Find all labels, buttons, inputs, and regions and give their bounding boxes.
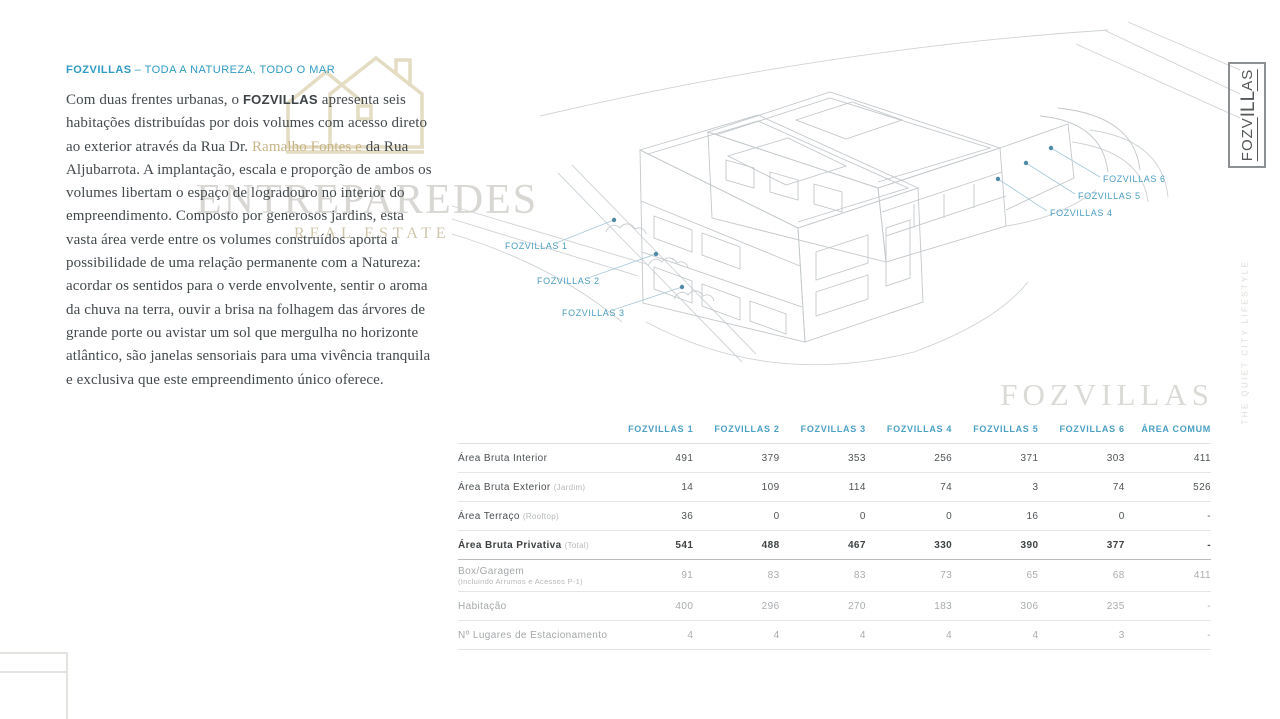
- table-cell: 235: [1038, 592, 1124, 621]
- intro-text: da Rua Aljubarrota. A implantação, escal…: [66, 139, 432, 388]
- table-header: FOZVILLAS 4: [866, 424, 952, 444]
- table-cell: 83: [693, 560, 779, 592]
- row-label: Área Terraço(Rooftop): [458, 502, 607, 531]
- garden-bushes: [606, 224, 714, 301]
- table-cell: 68: [1038, 560, 1124, 592]
- page-heading: FOZVILLAS– TODA A NATUREZA, TODO O MAR: [66, 64, 335, 76]
- table-row-habitacao: Habitação 400 296 270 183 306 235 -: [458, 592, 1211, 621]
- table-cell: 109: [693, 473, 779, 502]
- logo-segment: AS: [1239, 69, 1258, 91]
- table-cell: 4: [952, 621, 1038, 650]
- row-label: Área Bruta Privativa(Total): [458, 531, 607, 560]
- table-cell: 0: [780, 502, 866, 531]
- table-cell: 379: [693, 444, 779, 473]
- intro-paragraph: Com duas frentes urbanas, o FOZVILLAS ap…: [66, 88, 438, 392]
- table-cell: 0: [866, 502, 952, 531]
- table-cell: 0: [1038, 502, 1124, 531]
- table-cell: 74: [1038, 473, 1124, 502]
- table-cell: 36: [607, 502, 693, 531]
- table-cell: 411: [1125, 560, 1211, 592]
- section-title: FOZVILLAS: [1000, 377, 1214, 413]
- row-label: Nº Lugares de Estacionamento: [458, 621, 607, 650]
- table-header: FOZVILLAS 6: [1038, 424, 1124, 444]
- table-cell: 491: [607, 444, 693, 473]
- table-row-lugares-estacionamento: Nº Lugares de Estacionamento 4 4 4 4 4 3…: [458, 621, 1211, 650]
- table-header-row: FOZVILLAS 1 FOZVILLAS 2 FOZVILLAS 3 FOZV…: [458, 424, 1211, 444]
- table-header: ÁREA COMUM: [1125, 424, 1211, 444]
- table-cell: 91: [607, 560, 693, 592]
- table-cell: 0: [693, 502, 779, 531]
- table-cell: 377: [1038, 531, 1124, 560]
- table-cell: 353: [780, 444, 866, 473]
- table-cell: 390: [952, 531, 1038, 560]
- table-cell: 4: [780, 621, 866, 650]
- unit-label-fozvillas-4: FOZVILLAS 4: [1050, 208, 1113, 218]
- logo-segment: ILL: [1238, 91, 1259, 117]
- table-header: FOZVILLAS 3: [780, 424, 866, 444]
- table-cell: 411: [1125, 444, 1211, 473]
- table-cell: -: [1125, 531, 1211, 560]
- table-cell: 488: [693, 531, 779, 560]
- table-row-area-bruta-exterior: Área Bruta Exterior(Jardim) 14 109 114 7…: [458, 473, 1211, 502]
- table-cell: 65: [952, 560, 1038, 592]
- table-cell: 74: [866, 473, 952, 502]
- table-cell: 330: [866, 531, 952, 560]
- table-cell: 541: [607, 531, 693, 560]
- table-cell: 4: [693, 621, 779, 650]
- unit-label-fozvillas-5: FOZVILLAS 5: [1078, 191, 1141, 201]
- table-header: FOZVILLAS 5: [952, 424, 1038, 444]
- table-cell: 270: [780, 592, 866, 621]
- intro-brand: FOZVILLAS: [243, 92, 318, 107]
- table-cell: 303: [1038, 444, 1124, 473]
- table-cell: 400: [607, 592, 693, 621]
- table-cell: 4: [607, 621, 693, 650]
- intro-street-name: Ramalho Fontes e: [252, 139, 362, 155]
- table-cell: 3: [952, 473, 1038, 502]
- table-row-area-bruta-privativa: Área Bruta Privativa(Total) 541 488 467 …: [458, 531, 1211, 560]
- fozvillas-logo-text: FOZVILLAS: [1236, 69, 1258, 161]
- table-cell: 306: [952, 592, 1038, 621]
- unit-marker-dots: [612, 146, 1053, 289]
- fozvillas-logo-badge: FOZVILLAS: [1228, 62, 1266, 168]
- row-label: Área Bruta Interior: [458, 444, 607, 473]
- unit-label-fozvillas-3: FOZVILLAS 3: [562, 308, 625, 318]
- corner-mark-horizontal-bottom: [0, 671, 67, 673]
- intro-text: Com duas frentes urbanas, o: [66, 92, 243, 108]
- table-header: FOZVILLAS 1: [607, 424, 693, 444]
- unit-label-fozvillas-6: FOZVILLAS 6: [1103, 174, 1166, 184]
- areas-table: FOZVILLAS 1 FOZVILLAS 2 FOZVILLAS 3 FOZV…: [458, 424, 1211, 650]
- table-row-box-garagem: Box/Garagem(Incluindo Arrumos e Acessos …: [458, 560, 1211, 592]
- building-volume-left: [640, 115, 923, 342]
- row-label: Habitação: [458, 592, 607, 621]
- table-cell: 296: [693, 592, 779, 621]
- table-cell: 467: [780, 531, 866, 560]
- corner-mark-horizontal-top: [0, 652, 67, 654]
- heading-brand: FOZVILLAS: [66, 64, 132, 76]
- leader-lines: [556, 148, 1100, 310]
- table-cell: -: [1125, 502, 1211, 531]
- table-header: FOZVILLAS 2: [693, 424, 779, 444]
- unit-label-fozvillas-1: FOZVILLAS 1: [505, 241, 568, 251]
- table-row-area-bruta-interior: Área Bruta Interior 491 379 353 256 371 …: [458, 444, 1211, 473]
- corner-mark-vertical: [66, 652, 68, 719]
- table-cell: 16: [952, 502, 1038, 531]
- building-volume-right: [708, 92, 1140, 262]
- unit-label-fozvillas-2: FOZVILLAS 2: [537, 276, 600, 286]
- table-cell: 183: [866, 592, 952, 621]
- row-label: Área Bruta Exterior(Jardim): [458, 473, 607, 502]
- table-cell: 371: [952, 444, 1038, 473]
- table-cell: -: [1125, 592, 1211, 621]
- table-cell: 4: [866, 621, 952, 650]
- logo-segment: FOZV: [1239, 117, 1258, 161]
- table-cell: 83: [780, 560, 866, 592]
- table-cell: 114: [780, 473, 866, 502]
- table-cell: -: [1125, 621, 1211, 650]
- table-cell: 14: [607, 473, 693, 502]
- table-cell: 73: [866, 560, 952, 592]
- table-row-area-terraco: Área Terraço(Rooftop) 36 0 0 0 16 0 -: [458, 502, 1211, 531]
- row-label: Box/Garagem(Incluindo Arrumos e Acessos …: [458, 560, 607, 592]
- table-cell: 3: [1038, 621, 1124, 650]
- table-cell: 256: [866, 444, 952, 473]
- heading-tagline: – TODA A NATUREZA, TODO O MAR: [135, 64, 336, 76]
- vertical-tagline: THE QUIET CITY LIFESTYLE: [1241, 295, 1250, 425]
- table-header-empty: [458, 424, 607, 444]
- table-cell: 526: [1125, 473, 1211, 502]
